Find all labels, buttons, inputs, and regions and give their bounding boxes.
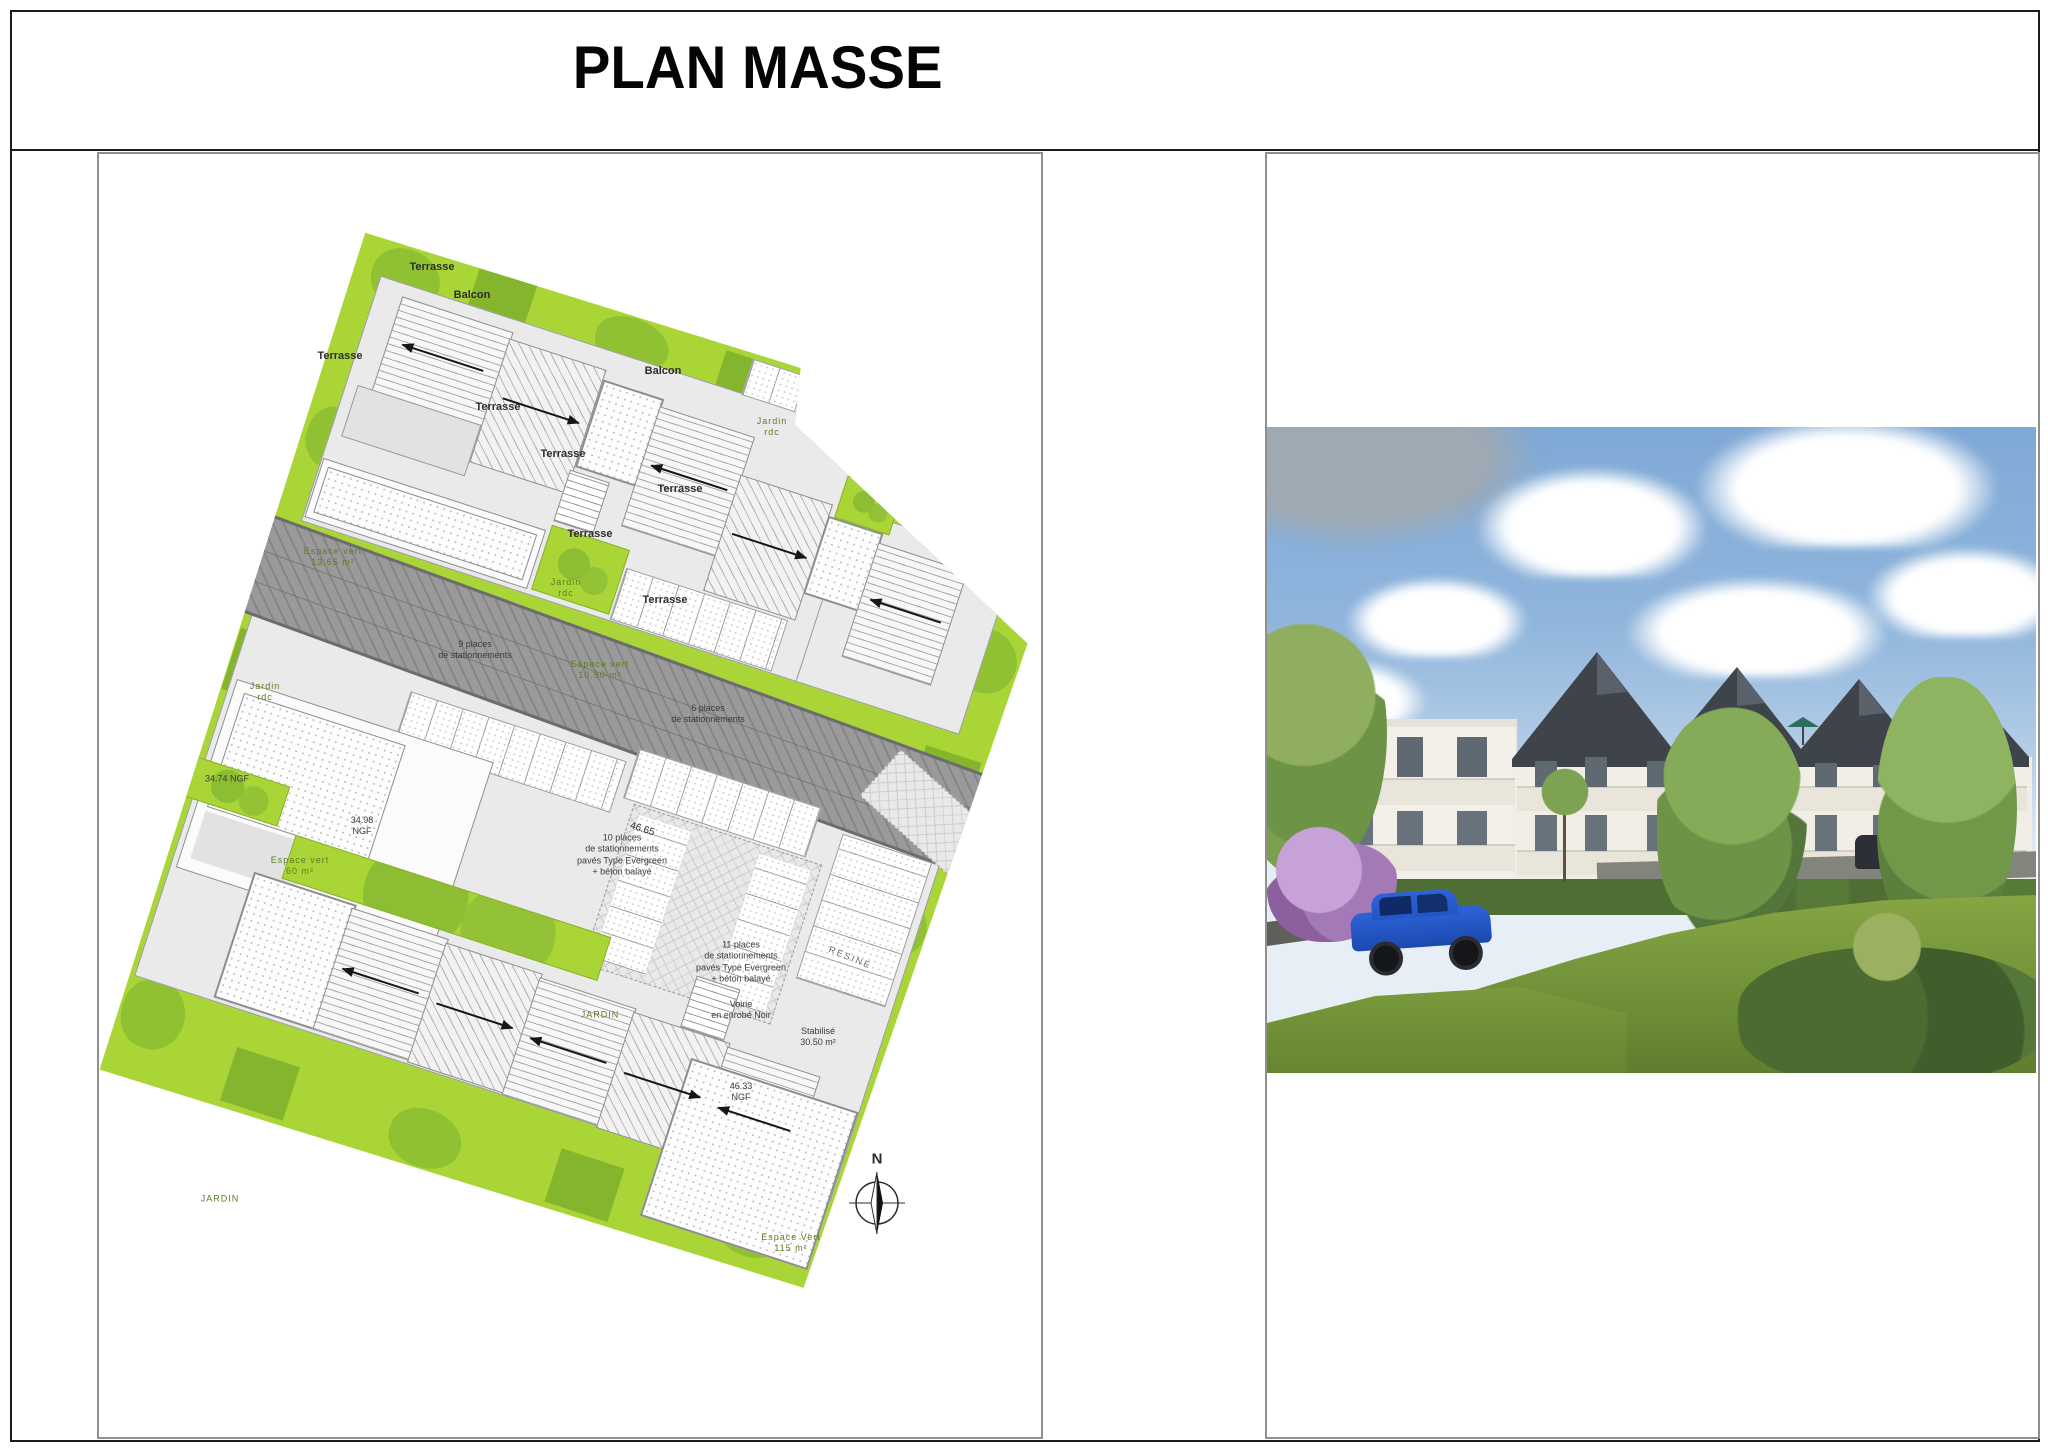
terrasse-label: Terrasse — [642, 594, 687, 608]
content-divider — [10, 149, 2038, 151]
terrasse-label: Terrasse — [317, 350, 362, 364]
parking-label: 10 places de stationnements pavés Type E… — [577, 833, 667, 878]
title-bar: PLAN MASSE — [0, 22, 1515, 112]
jardin-label: JARDIN — [201, 1193, 240, 1204]
balcon-label: Balcon — [645, 365, 682, 379]
car-window — [1417, 893, 1448, 913]
tree-blob — [220, 1047, 300, 1121]
parking-label: 11 places de stationnements pavés Type E… — [696, 940, 786, 985]
parking-label: 6 places de stationnements — [671, 703, 745, 726]
document-page: { "title": { "text": "PLAN MASSE" }, "pl… — [0, 0, 2048, 1450]
compass: N — [845, 1150, 909, 1236]
stabilise-label: Stabilisé 30.50 m² — [800, 1026, 836, 1049]
espace-vert-label: Espace Vert 115 m² — [761, 1232, 821, 1255]
jardin-rdc-label: Jardin rdc — [551, 577, 582, 600]
tree-blob — [545, 1148, 625, 1222]
tree-blob — [381, 1100, 469, 1178]
north-label: N — [872, 1151, 883, 1170]
page-title: PLAN MASSE — [573, 33, 943, 102]
parking-label: 9 places de stationnements — [438, 639, 512, 662]
jardin-label: JARDIN — [581, 1009, 620, 1020]
north-arrow-icon — [845, 1170, 909, 1236]
balcon-label: Balcon — [454, 289, 491, 303]
espace-vert-label: Espace vert 13.65 m² — [304, 546, 363, 569]
terrasse-label: Terrasse — [540, 448, 585, 462]
terrasse-label: Terrasse — [567, 528, 612, 542]
ngf-label: 46.33 NGF — [730, 1081, 753, 1104]
ngf-label: 34.98 NGF — [351, 815, 374, 838]
car-window — [1379, 896, 1412, 916]
voirie-label: Voirie en enrobé Noir — [711, 999, 771, 1022]
terrasse-label: Terrasse — [475, 401, 520, 415]
terrasse-label: Terrasse — [409, 261, 454, 275]
terrasse-label: Terrasse — [657, 483, 702, 497]
ngf-label: 34.74 NGF — [205, 773, 249, 784]
jardin-rdc-label: Jardin rdc — [250, 681, 281, 704]
jardin-rdc-label: Jardin rdc — [757, 416, 788, 439]
espace-vert-label: Espace vert 10.50 m² — [571, 659, 630, 682]
espace-vert-label: Espace vert 60 m² — [271, 855, 330, 878]
building-render-photo — [1267, 427, 2036, 1073]
blue-car — [1348, 884, 1493, 972]
